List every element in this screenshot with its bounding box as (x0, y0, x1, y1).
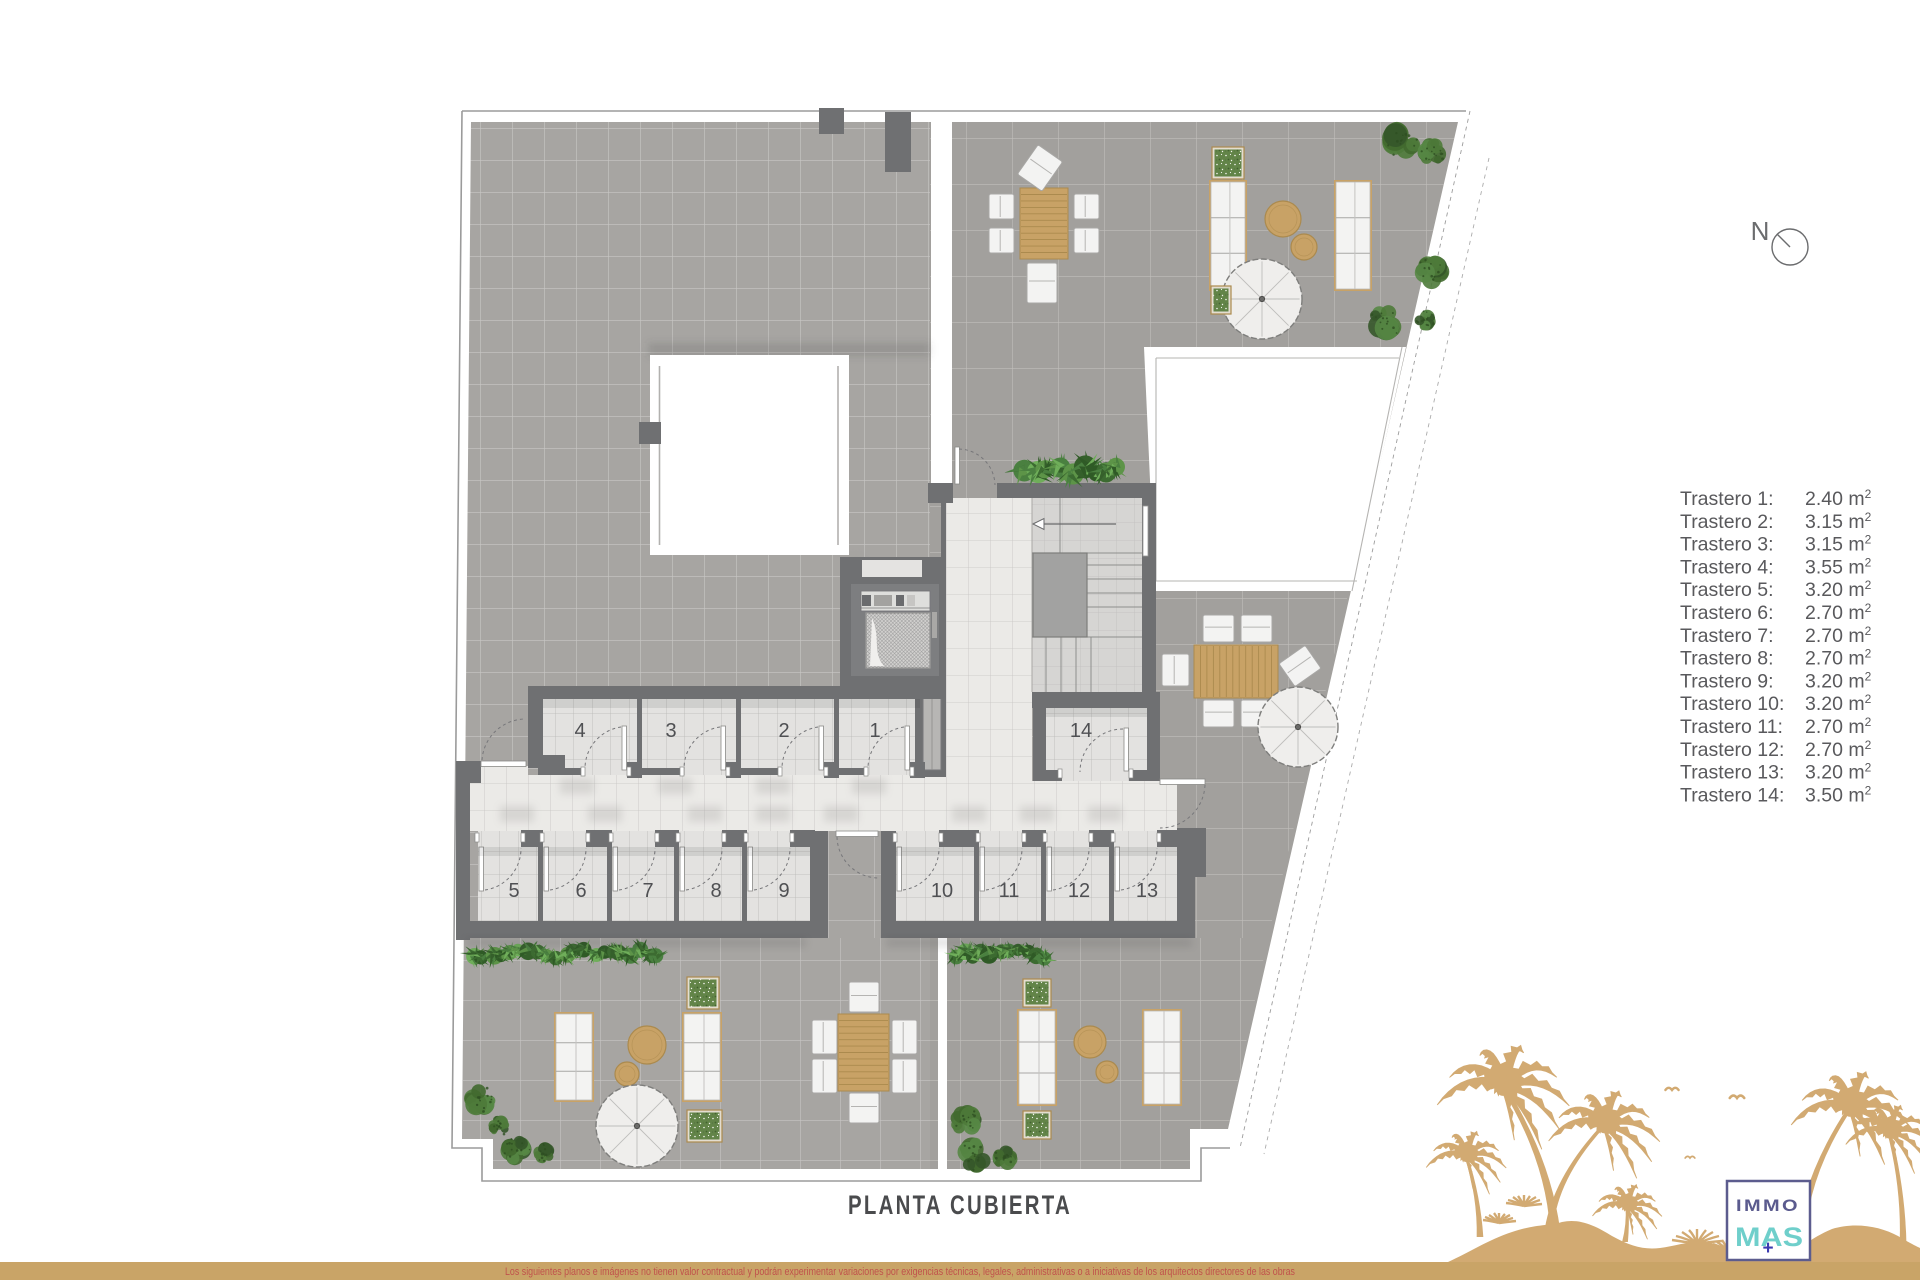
svg-text:Trastero 13:: Trastero 13: (1680, 762, 1784, 784)
svg-text:2.70 m2: 2.70 m2 (1805, 647, 1872, 670)
svg-text:Trastero 12:: Trastero 12: (1680, 739, 1784, 761)
svg-text:Trastero 14:: Trastero 14: (1680, 784, 1784, 806)
svg-text:Los siguientes planos e imágen: Los siguientes planos e imágenes no tien… (505, 1266, 1295, 1278)
svg-text:Trastero 8:: Trastero 8: (1680, 648, 1774, 670)
svg-text:Trastero 2:: Trastero 2: (1680, 511, 1774, 533)
svg-text:PLANTA CUBIERTA: PLANTA CUBIERTA (848, 1190, 1072, 1220)
svg-text:2.40 m2: 2.40 m2 (1805, 487, 1872, 510)
svg-text:2.70 m2: 2.70 m2 (1805, 715, 1872, 738)
svg-text:+: + (1762, 1238, 1773, 1259)
svg-text:5: 5 (508, 880, 519, 902)
svg-text:8: 8 (710, 880, 721, 902)
svg-text:1: 1 (869, 720, 880, 742)
svg-text:2.70 m2: 2.70 m2 (1805, 601, 1872, 624)
svg-text:3.15 m2: 3.15 m2 (1805, 510, 1872, 533)
svg-text:3.20 m2: 3.20 m2 (1805, 692, 1872, 715)
svg-text:3: 3 (665, 720, 676, 742)
svg-text:9: 9 (778, 880, 789, 902)
svg-text:11: 11 (999, 880, 1020, 902)
svg-text:4: 4 (574, 720, 585, 742)
svg-text:3.20 m2: 3.20 m2 (1805, 761, 1872, 784)
svg-text:3.55 m2: 3.55 m2 (1805, 555, 1872, 578)
svg-text:7: 7 (642, 880, 653, 902)
svg-text:Trastero 4:: Trastero 4: (1680, 556, 1774, 578)
svg-text:Trastero 1:: Trastero 1: (1680, 488, 1774, 510)
svg-text:14: 14 (1070, 720, 1092, 742)
svg-text:Trastero 7:: Trastero 7: (1680, 625, 1774, 647)
svg-text:3.15 m2: 3.15 m2 (1805, 533, 1872, 556)
svg-text:Trastero 9:: Trastero 9: (1680, 670, 1774, 692)
svg-text:Trastero 10:: Trastero 10: (1680, 693, 1784, 715)
svg-text:N: N (1751, 216, 1770, 246)
svg-text:Trastero 6:: Trastero 6: (1680, 602, 1774, 624)
svg-text:3.50 m2: 3.50 m2 (1805, 783, 1872, 806)
svg-text:Trastero 5:: Trastero 5: (1680, 579, 1774, 601)
svg-text:Trastero 3:: Trastero 3: (1680, 534, 1774, 556)
svg-text:10: 10 (931, 880, 953, 902)
svg-text:6: 6 (575, 880, 586, 902)
svg-text:3.20 m2: 3.20 m2 (1805, 669, 1872, 692)
svg-text:2.70 m2: 2.70 m2 (1805, 624, 1872, 647)
svg-text:3.20 m2: 3.20 m2 (1805, 578, 1872, 601)
svg-text:Trastero 11:: Trastero 11: (1680, 716, 1783, 738)
svg-text:2.70 m2: 2.70 m2 (1805, 738, 1872, 761)
svg-text:IMMO: IMMO (1736, 1197, 1800, 1215)
svg-text:2: 2 (778, 720, 789, 742)
